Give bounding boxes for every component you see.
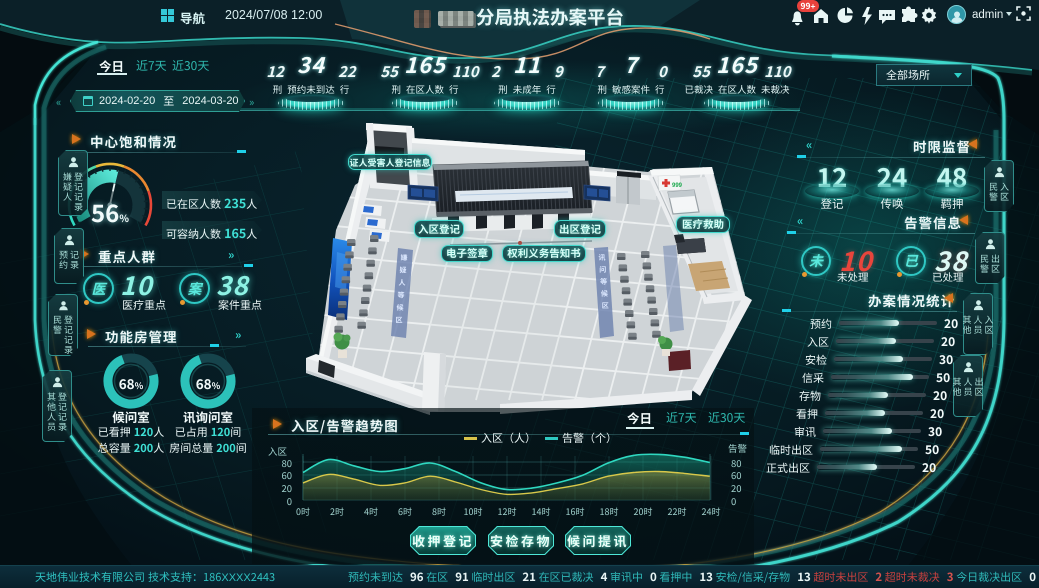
svg-text:问: 问 (599, 265, 606, 275)
svg-text:等: 等 (600, 277, 607, 287)
svg-text:等: 等 (398, 291, 405, 301)
svg-text:人: 人 (399, 278, 406, 288)
svg-text:嫌: 嫌 (401, 253, 408, 263)
svg-text:候: 候 (397, 303, 404, 313)
svg-text:候: 候 (601, 289, 608, 299)
svg-text:区: 区 (396, 316, 403, 326)
svg-text:疑: 疑 (400, 266, 407, 276)
svg-text:讯: 讯 (599, 253, 606, 263)
svg-text:区: 区 (602, 301, 609, 311)
svg-text:999: 999 (672, 183, 683, 189)
